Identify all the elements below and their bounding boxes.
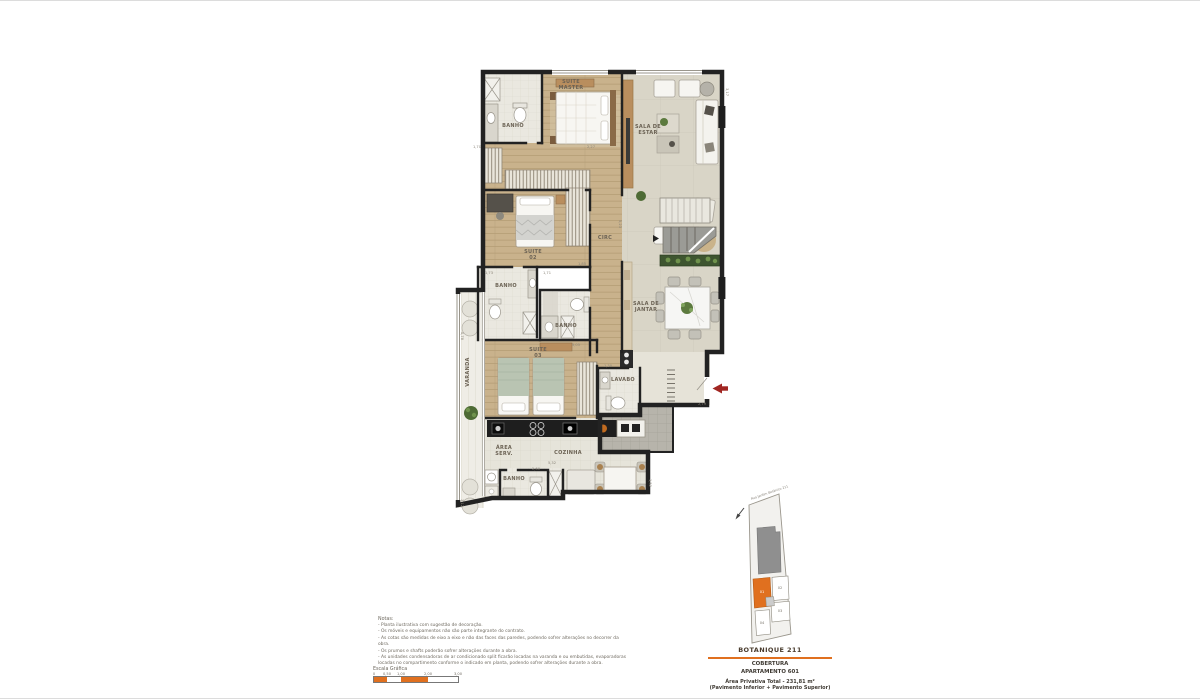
entry-arrow [713,384,729,394]
scale-tick-1: 0,50 [383,672,391,676]
scale-tick-2: 1,00 [397,672,405,676]
keyplan-unit-02 [772,576,789,601]
scale-segment-0 [374,677,387,682]
scale-tick-0: 0 [373,672,375,676]
floor-plan-drawing [0,0,1200,700]
scale-tick-3: 2,00 [424,672,432,676]
notes-items: - Planta ilustrativa com sugestão de dec… [378,623,628,668]
note-item-4: - As unidades condensadoras de ar condic… [378,655,628,668]
title-accent-rule [708,657,832,659]
title-block: BOTANIQUE 211 COBERTURA APARTAMENTO 601 … [700,646,840,691]
kitchen-counter [487,420,645,437]
pavement-info: (Pavimento Inferior + Pavimento Superior… [700,685,840,691]
keyplan-unit-04 [755,610,771,636]
apartment-number: APARTAMENTO 601 [700,669,840,675]
note-item-2: - As cotas são medidas de eixo a eixo e … [378,636,628,649]
unit-type: COBERTURA [700,661,840,667]
stair-planter [660,255,720,266]
scale-tick-4: 3,00 [454,672,462,676]
keyplan-building [757,527,781,575]
scale-segment-2 [401,677,428,682]
scale-segment-1 [387,677,401,682]
north-arrow [736,508,745,520]
notes-heading: Notas: [378,617,628,622]
floorplan-page: SUITE MASTERBANHOSALA DE ESTARSUITE 02CI… [0,0,1200,700]
notes-block: Notas: - Planta ilustrativa com sugestão… [378,617,628,668]
keyplan [736,494,792,643]
scale-bar-track: 00,501,002,003,00 [373,676,459,683]
scale-segment-3 [428,677,458,682]
project-name: BOTANIQUE 211 [700,646,840,654]
scale-bar: Escala Gráfica 00,501,002,003,00 [373,667,483,683]
private-area: Área Privativa Total - 231,81 m² [700,679,840,685]
